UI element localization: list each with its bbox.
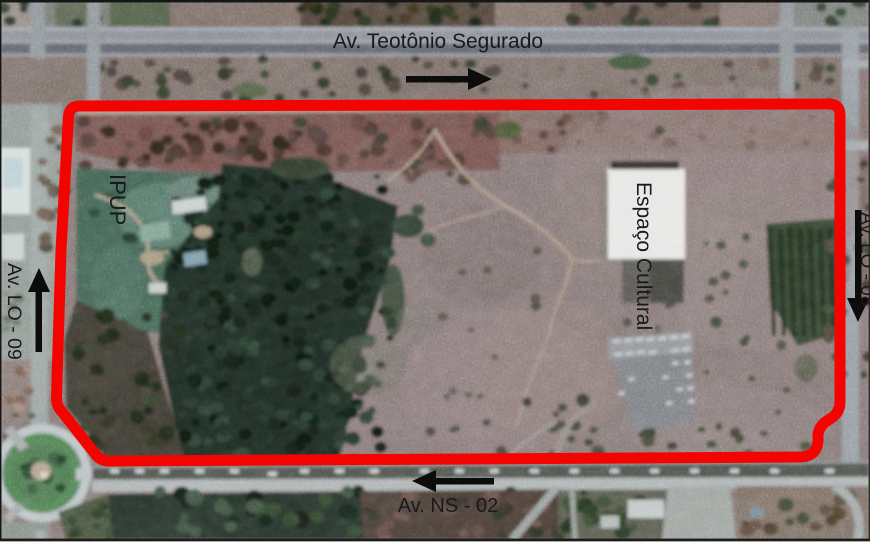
svg-text:Av. LO - 09: Av. LO - 09: [3, 263, 25, 360]
svg-text:Av. NS - 02: Av. NS - 02: [398, 495, 498, 517]
svg-text:Av. LO - 08: Av. LO - 08: [856, 212, 870, 306]
svg-text:Av. Teotônio Segurado: Av. Teotônio Segurado: [333, 30, 543, 53]
svg-text:Espaço Cultural: Espaço Cultural: [632, 182, 655, 330]
svg-text:IPUP: IPUP: [105, 174, 130, 225]
